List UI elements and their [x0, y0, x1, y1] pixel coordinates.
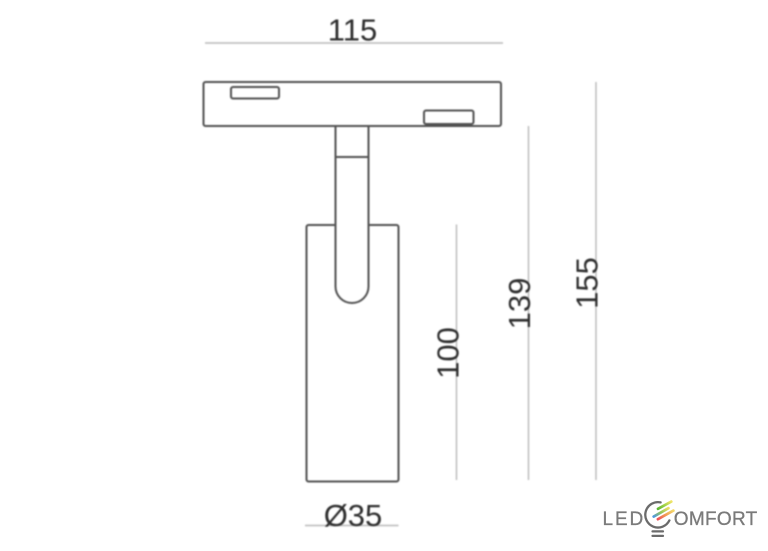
svg-text:OMFORT: OMFORT [674, 509, 758, 530]
svg-text:LED: LED [603, 509, 646, 530]
svg-text:139: 139 [502, 278, 537, 330]
svg-text:115: 115 [328, 13, 377, 48]
svg-text:155: 155 [570, 257, 605, 309]
svg-text:Ø35: Ø35 [324, 498, 383, 533]
svg-text:100: 100 [431, 327, 466, 379]
